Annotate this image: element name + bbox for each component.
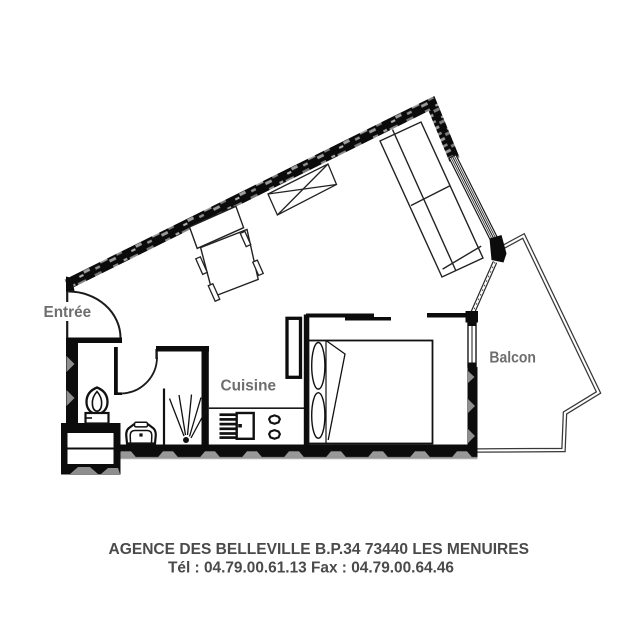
svg-text:AGENCE DES BELLEVILLE B.P.34 7: AGENCE DES BELLEVILLE B.P.34 73440 LES M… bbox=[109, 541, 530, 558]
svg-text:Tél : 04.79.00.61.13 Fax : 04: Tél : 04.79.00.61.13 Fax : 04.79.00.64.4… bbox=[168, 559, 454, 576]
svg-text:Balcon: Balcon bbox=[489, 350, 536, 367]
svg-text:Cuisine: Cuisine bbox=[221, 378, 277, 395]
svg-text:Entrée: Entrée bbox=[44, 304, 92, 321]
